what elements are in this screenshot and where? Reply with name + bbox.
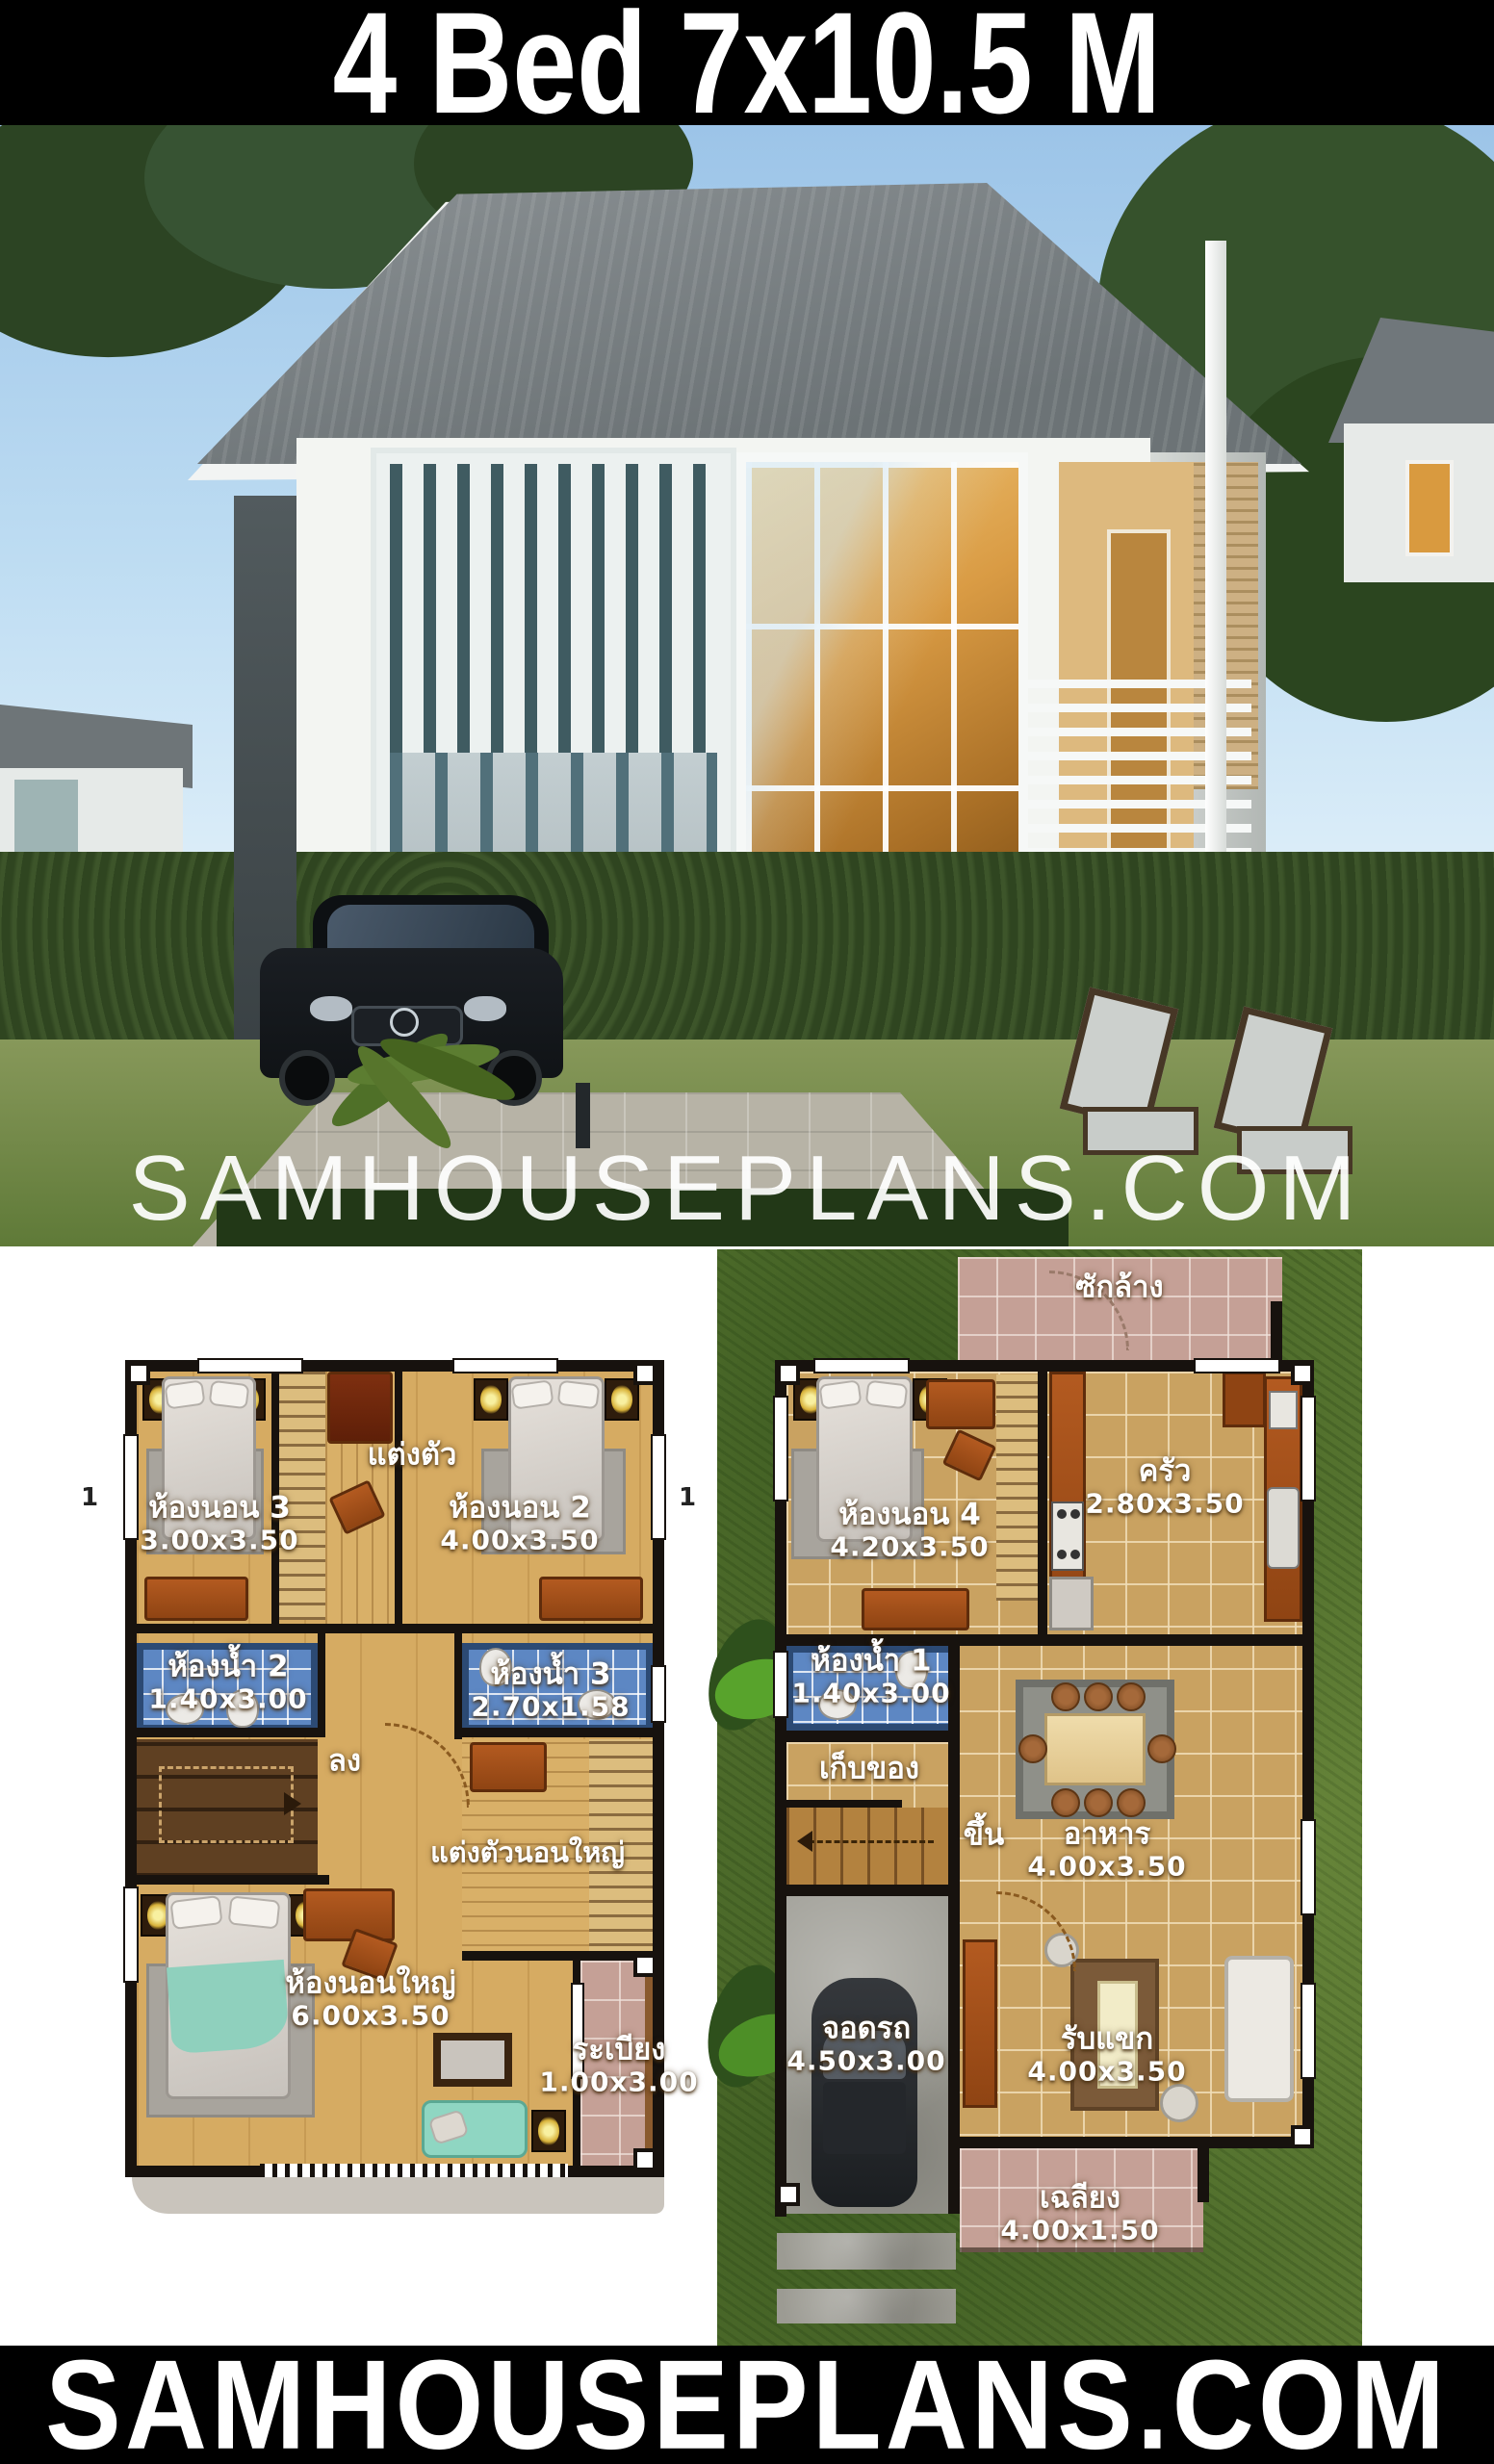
room-name: ห้องน้ำ 3 (471, 1657, 630, 1691)
room-label-kitchen: ครัว2.80x3.50 (1085, 1454, 1244, 1519)
wall (1271, 1301, 1282, 1360)
room-label-down: ลง (328, 1744, 361, 1778)
room-dims: 4.50x3.00 (786, 2046, 945, 2077)
room-name: ระเบียง (539, 2033, 698, 2066)
room-dims: 2.70x1.58 (471, 1692, 630, 1723)
window (813, 1358, 910, 1373)
room-name: ห้องนอน 3 (140, 1491, 298, 1525)
window (197, 1358, 303, 1373)
window (651, 1434, 666, 1540)
plan-car-roof (823, 2082, 906, 2154)
room-name: ห้องน้ำ 1 (791, 1644, 950, 1678)
desk (926, 1379, 995, 1429)
room-dims: 2.80x3.50 (1085, 1489, 1244, 1520)
window (773, 1651, 788, 1718)
wall (1198, 2148, 1209, 2202)
car-wheel (279, 1050, 335, 1106)
dressing-cabinet (470, 1742, 547, 1792)
room-label-master: ห้องนอนใหญ่6.00x3.50 (285, 1966, 455, 2031)
window (773, 1396, 788, 1501)
stove (1051, 1501, 1084, 1571)
corner-block (777, 2183, 800, 2206)
corner-block (127, 1362, 150, 1385)
burner (1070, 1509, 1080, 1519)
house-render: SAMHOUSEPLANS.COM (0, 125, 1494, 1246)
stairs-arrow (284, 1792, 301, 1815)
room-name: ครัว (1085, 1454, 1244, 1488)
room-label-bath1: ห้องน้ำ 11.40x3.00 (791, 1644, 950, 1708)
dining-chair (1051, 1788, 1080, 1817)
burner (1057, 1509, 1067, 1519)
room-label-storage: เก็บของ (819, 1752, 919, 1785)
pillow (557, 1380, 601, 1410)
room-dims: 4.00x3.50 (1027, 1852, 1186, 1883)
window (1301, 1396, 1316, 1501)
room-dims: 4.20x3.50 (830, 1532, 989, 1563)
wall (318, 1633, 325, 1732)
room-name: ซักล้าง (1075, 1270, 1163, 1304)
stairs-guide (809, 1840, 934, 1843)
room-label-laundry: ซักล้าง (1075, 1270, 1163, 1304)
stairs-arrow (797, 1831, 812, 1852)
room-name: ขึ้น (964, 1818, 1004, 1852)
wall (1038, 1372, 1047, 1634)
wall (462, 1951, 653, 1961)
room-label-bath3: ห้องน้ำ 32.70x1.58 (471, 1657, 630, 1722)
wall (775, 1885, 960, 1896)
dining-chair (1147, 1734, 1176, 1763)
room-name: ห้องนอน 2 (440, 1491, 599, 1525)
section-marker: 1 (81, 1483, 98, 1512)
room-dims: 1.40x3.00 (791, 1679, 950, 1709)
wall (395, 1372, 402, 1631)
room-dims: 1.40x3.00 (148, 1684, 307, 1715)
tv-dresser (862, 1588, 969, 1630)
room-name: ลง (328, 1744, 361, 1778)
room-dims: 3.00x3.50 (140, 1526, 298, 1556)
floor-lamp (531, 2110, 566, 2152)
room-label-dressing: แต่งตัว (368, 1438, 457, 1472)
dining-chair (1084, 1788, 1113, 1817)
dining-chair (1117, 1682, 1146, 1711)
room-label-bedroom4: ห้องนอน 44.20x3.50 (830, 1498, 989, 1562)
upper-cabinet (1223, 1372, 1266, 1427)
window (123, 1886, 139, 1983)
dining-chair (1018, 1734, 1047, 1763)
corner-block (1291, 1362, 1314, 1385)
pillow (865, 1380, 909, 1410)
wall (454, 1633, 462, 1739)
room-name: เก็บของ (819, 1752, 919, 1785)
kitchen-sink (1267, 1487, 1300, 1569)
room-label-balcony: ระเบียง1.00x3.00 (539, 2033, 698, 2097)
tv-dresser (539, 1577, 643, 1621)
vertical-slats (390, 464, 717, 753)
sofa (1224, 1956, 1294, 2102)
room-label-master-dressing: แต่งตัวนอนใหญ่ (430, 1836, 625, 1868)
counter-top (1269, 1391, 1298, 1429)
wardrobe (327, 1372, 393, 1444)
section-marker: 1 (679, 1483, 696, 1512)
dining-table (1044, 1713, 1146, 1785)
bottom-banner: SAMHOUSEPLANS.COM (0, 2346, 1494, 2464)
room-name: แต่งตัวนอนใหญ่ (430, 1836, 625, 1868)
nightstand-lamp (474, 1378, 508, 1421)
top-banner: 4 Bed 7x10.5 M (0, 0, 1494, 125)
fridge (1049, 1577, 1094, 1630)
watermark-text: SAMHOUSEPLANS.COM (0, 1136, 1494, 1242)
column (1205, 241, 1226, 876)
corner-block (633, 1954, 657, 1977)
wall (786, 1731, 960, 1742)
corner-block (633, 2148, 657, 2171)
room-label-carpark: จอดรถ4.50x3.00 (786, 2012, 945, 2076)
room-label-bath2: ห้องน้ำ 21.40x3.00 (148, 1650, 307, 1714)
room-label-porch: เฉลียง4.00x1.50 (1000, 2181, 1159, 2246)
room-name: แต่งตัว (368, 1438, 457, 1472)
room-name: ห้องนอนใหญ่ (285, 1966, 455, 2000)
pillow (228, 1895, 281, 1929)
neighbor-window (1405, 460, 1454, 556)
room-name: เฉลียง (1000, 2181, 1159, 2215)
burner (1070, 1550, 1080, 1559)
window (651, 1665, 666, 1723)
window (452, 1358, 558, 1373)
corner-block (777, 1362, 800, 1385)
window (123, 1434, 139, 1540)
pillow (209, 1380, 250, 1410)
wall (137, 1728, 325, 1737)
room-dims: 4.00x3.50 (440, 1526, 599, 1556)
wall (454, 1728, 653, 1737)
window (1301, 1819, 1316, 1915)
dining-chair (1117, 1788, 1146, 1817)
room-label-bedroom2: ห้องนอน 24.00x3.50 (440, 1491, 599, 1555)
page-title: 4 Bed 7x10.5 M (333, 0, 1161, 125)
wall (137, 1875, 329, 1885)
lower-roof-terrace (132, 2177, 664, 2214)
poster-page: 4 Bed 7x10.5 M (0, 0, 1494, 2464)
room-name: จอดรถ (786, 2012, 945, 2045)
wall (960, 2137, 1314, 2148)
round-table (1160, 2084, 1198, 2122)
room-dims: 4.00x3.50 (1027, 2057, 1186, 2088)
room-label-up: ขึ้น (964, 1818, 1004, 1852)
site-name: SAMHOUSEPLANS.COM (45, 2346, 1449, 2464)
room-name: ห้องน้ำ 2 (148, 1650, 307, 1683)
car-headlight (310, 996, 352, 1021)
room-dims: 1.00x3.00 (539, 2067, 698, 2098)
room-name: ห้องนอน 4 (830, 1498, 989, 1531)
window (1194, 1358, 1280, 1373)
window (1301, 1983, 1316, 2079)
room-dims: 6.00x3.50 (285, 2001, 455, 2032)
stairs-dashed-guide (159, 1766, 294, 1843)
room-dims: 4.00x1.50 (1000, 2216, 1159, 2246)
pillow (169, 1895, 222, 1930)
driveway-strip (777, 2233, 956, 2270)
burner (1057, 1550, 1067, 1559)
closet-strip (996, 1374, 1039, 1601)
wall (786, 1800, 902, 1808)
dining-chair (1051, 1682, 1080, 1711)
car-badge (390, 1008, 419, 1037)
room-label-dining: อาหาร4.00x3.50 (1027, 1817, 1186, 1882)
corner-block (1291, 2125, 1314, 2148)
car-headlight (464, 996, 506, 1021)
tv-dresser (144, 1577, 248, 1621)
room-label-living: รับแขก4.00x3.50 (1027, 2022, 1186, 2087)
side-cabinet (963, 1939, 997, 2108)
dining-chair (1084, 1682, 1113, 1711)
room-name: รับแขก (1027, 2022, 1186, 2056)
room-label-bedroom3: ห้องนอน 33.00x3.50 (140, 1491, 298, 1555)
wall (948, 1646, 960, 2214)
driveway-strip (777, 2289, 956, 2323)
corner-block (633, 1362, 657, 1385)
room-name: อาหาร (1027, 1817, 1186, 1851)
master-cabinet (303, 1888, 395, 1941)
wall (137, 1624, 653, 1633)
mirror-table (433, 2033, 512, 2087)
